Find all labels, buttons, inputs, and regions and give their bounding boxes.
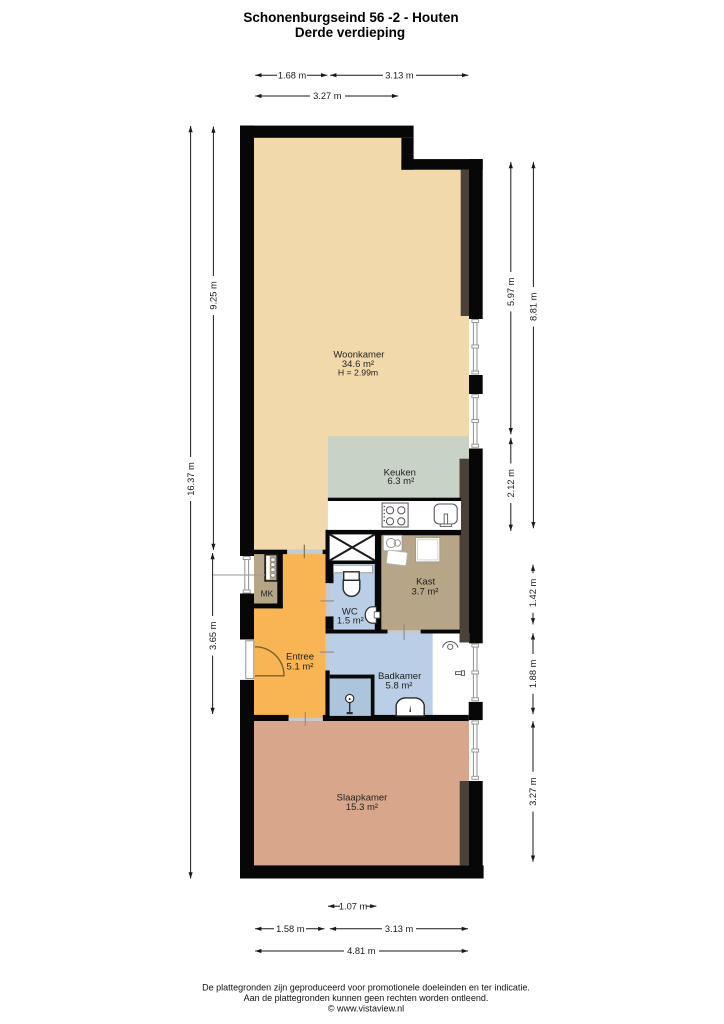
svg-text:3.13 m: 3.13 m: [385, 924, 414, 934]
svg-text:3.27 m: 3.27 m: [313, 91, 342, 101]
svg-text:H = 2.99m: H = 2.99m: [338, 368, 378, 378]
svg-text:1.07 m: 1.07 m: [339, 901, 368, 911]
svg-text:1.5 m²: 1.5 m²: [337, 616, 364, 627]
svg-text:MK: MK: [261, 589, 274, 599]
svg-text:5.8 m²: 5.8 m²: [386, 680, 413, 691]
svg-text:1.42 m: 1.42 m: [528, 579, 538, 608]
svg-text:De plattegronden zijn geproduc: De plattegronden zijn geproduceerd voor …: [202, 983, 530, 993]
svg-text:9.25 m: 9.25 m: [209, 281, 219, 310]
svg-text:3.27 m: 3.27 m: [528, 777, 538, 806]
svg-text:Aan de plattegronden kunnen ge: Aan de plattegronden kunnen geen rechten…: [244, 993, 489, 1003]
svg-text:3.65 m: 3.65 m: [208, 621, 218, 650]
svg-text:6.3 m²: 6.3 m²: [387, 476, 414, 487]
svg-text:16.37 m: 16.37 m: [186, 462, 196, 496]
svg-text:5.97 m: 5.97 m: [506, 277, 516, 306]
svg-text:1.68 m: 1.68 m: [278, 70, 307, 80]
svg-text:8.81 m: 8.81 m: [529, 292, 539, 321]
svg-text:3.7 m²: 3.7 m²: [412, 586, 439, 597]
svg-text:2.12 m: 2.12 m: [506, 469, 516, 498]
svg-text:Schonenburgseind 56 -2 - Houte: Schonenburgseind 56 -2 - Houten: [243, 10, 458, 25]
svg-text:© www.vistaview.nl: © www.vistaview.nl: [328, 1004, 404, 1014]
svg-text:Derde verdieping: Derde verdieping: [295, 25, 405, 40]
svg-text:1.58 m: 1.58 m: [276, 924, 305, 934]
svg-text:4.81 m: 4.81 m: [347, 946, 376, 956]
svg-text:15.3 m²: 15.3 m²: [346, 802, 378, 813]
svg-text:3.13 m: 3.13 m: [385, 70, 414, 80]
svg-text:5.1 m²: 5.1 m²: [287, 662, 314, 673]
svg-text:1.88 m: 1.88 m: [528, 659, 538, 688]
